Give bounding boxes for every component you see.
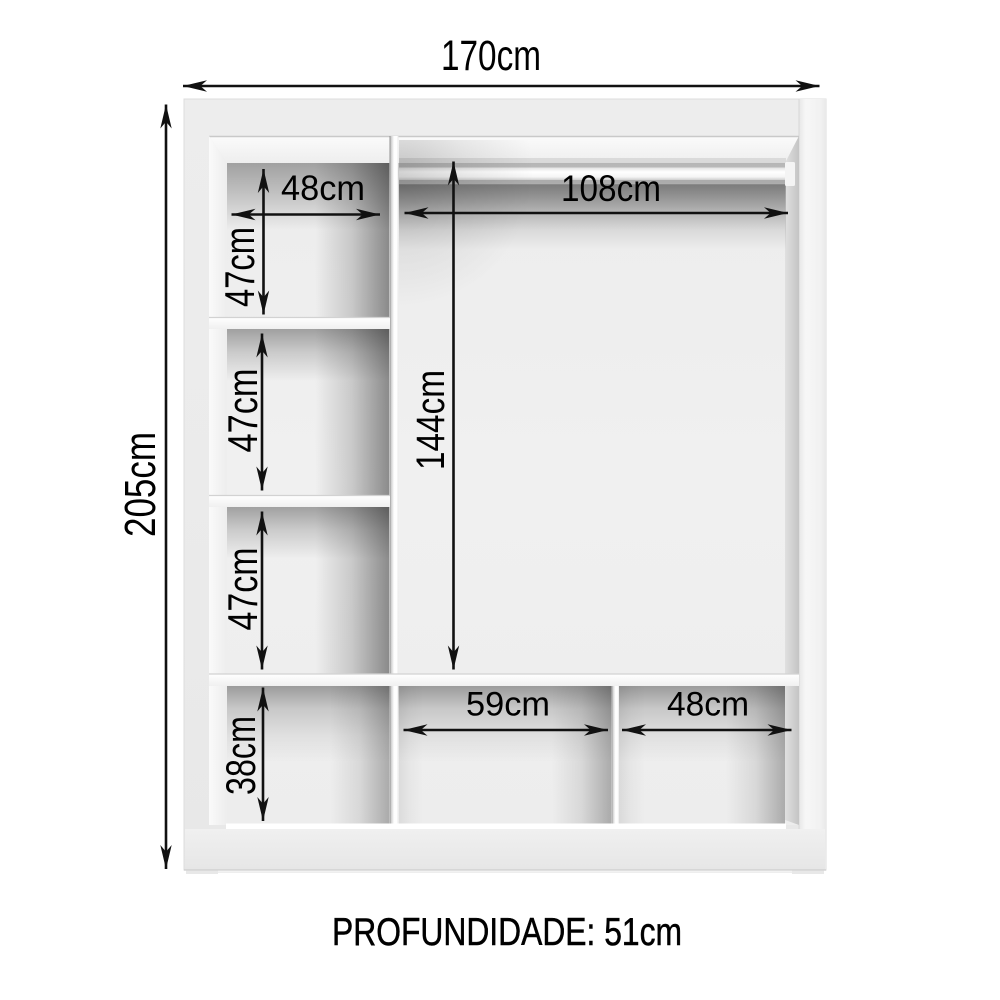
svg-text:47cm: 47cm	[219, 548, 266, 631]
svg-text:48cm: 48cm	[281, 169, 365, 208]
svg-text:PROFUNDIDADE: 51cm: PROFUNDIDADE: 51cm	[332, 911, 682, 954]
svg-text:47cm: 47cm	[219, 369, 266, 453]
svg-text:144cm: 144cm	[409, 370, 453, 470]
svg-text:48cm: 48cm	[667, 686, 749, 724]
svg-text:38cm: 38cm	[217, 716, 264, 795]
svg-text:108cm: 108cm	[561, 168, 661, 209]
svg-text:170cm: 170cm	[441, 32, 541, 80]
svg-text:59cm: 59cm	[466, 686, 550, 724]
svg-text:205cm: 205cm	[116, 432, 165, 537]
svg-text:47cm: 47cm	[216, 227, 263, 307]
